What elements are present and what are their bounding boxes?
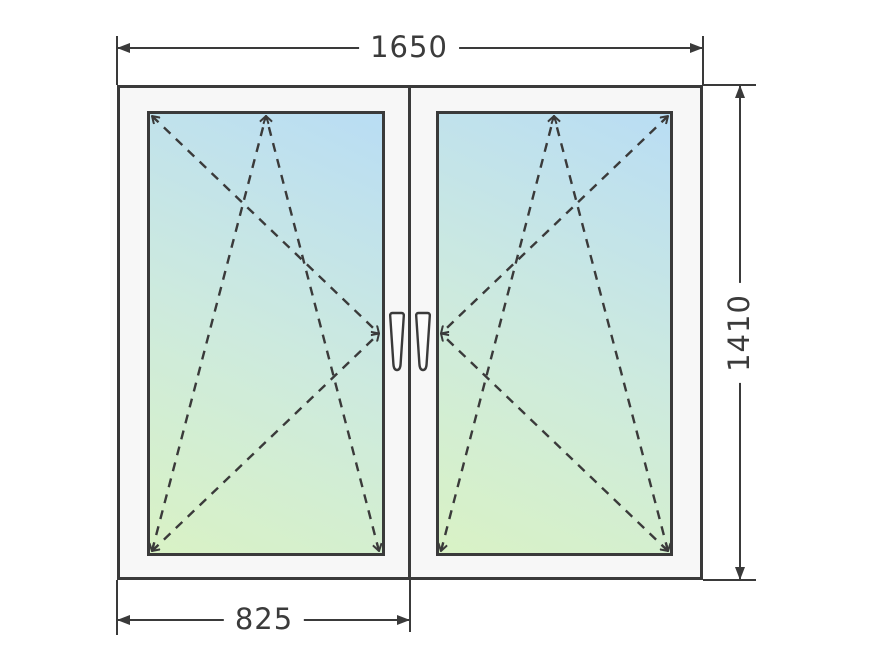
arrowhead-left-icon: [117, 43, 130, 53]
tilt-line: [441, 116, 554, 551]
turn-line: [441, 334, 668, 552]
sash-width-label: 825: [224, 604, 304, 636]
left-sash-glass[interactable]: [147, 111, 385, 556]
window-configuration-diagram: 1650 1410 825: [0, 0, 870, 670]
extension-line: [116, 580, 118, 635]
turn-line: [152, 334, 379, 552]
arrowhead-right-icon: [397, 615, 410, 625]
right-sash-handle[interactable]: [414, 311, 432, 372]
extension-line: [703, 84, 756, 86]
total-width-label: 1650: [359, 32, 459, 64]
arrowhead-right-icon: [690, 43, 703, 53]
arrowhead-up-icon: [735, 85, 745, 98]
arrowhead-left-icon: [117, 615, 130, 625]
tilt-line: [554, 116, 668, 551]
window-handle-icon: [414, 311, 432, 372]
total-height-label: 1410: [724, 283, 756, 383]
tilt-line: [152, 116, 266, 551]
arrowhead-down-icon: [735, 567, 745, 580]
right-sash-glass[interactable]: [436, 111, 673, 556]
center-mullion: [408, 88, 411, 577]
right-sash-opening-symbol: [439, 114, 670, 553]
left-sash-handle[interactable]: [388, 311, 406, 372]
tilt-line: [266, 116, 379, 551]
window-handle-icon: [388, 311, 406, 372]
left-sash-opening-symbol: [150, 114, 382, 553]
extension-line: [703, 579, 756, 581]
turn-line: [152, 116, 379, 334]
turn-line: [441, 116, 668, 334]
